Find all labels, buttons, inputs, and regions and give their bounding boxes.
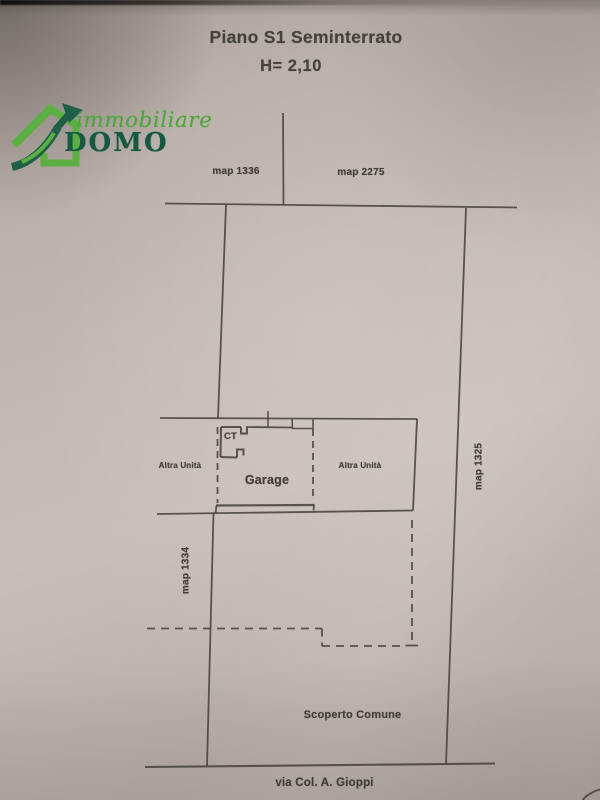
right-boundary-line — [446, 208, 466, 765]
top-boundary-line — [165, 204, 517, 208]
garage-top-wall — [246, 427, 292, 428]
scanned-floor-plan-photo: immobiliare DOMO Piano S1 Seminterrato H… — [0, 0, 600, 800]
wall-recess-notch — [292, 419, 313, 429]
garage-bottom-wall — [216, 505, 315, 506]
room-label-garage: Garage — [236, 473, 298, 487]
street-name-label: via Col. A. Gioppi — [252, 777, 397, 789]
parcel-label-map-1325: map 1325 — [474, 422, 485, 512]
left-boundary-upper — [218, 205, 226, 418]
left-boundary-lower — [207, 513, 214, 766]
room-label-altra-unita-right: Altra Unità — [329, 461, 391, 470]
room-label-altra-unita-left: Altra Unità — [149, 461, 211, 470]
parcel-label-map-1336: map 1336 — [205, 166, 267, 177]
room-label-ct: CT — [224, 431, 237, 442]
floor-plan-drawing — [0, 0, 600, 800]
corner-stamp-arc — [579, 784, 600, 800]
parcel-label-map-1334: map 1334 — [181, 526, 192, 616]
area-label-scoperto-comune: Scoperto Comune — [290, 709, 415, 721]
parcel-label-map-2275: map 2275 — [330, 167, 392, 178]
street-line — [145, 764, 495, 768]
block-right-wall — [413, 419, 417, 511]
block-bottom-line — [157, 511, 413, 515]
parcel-divider-line — [283, 113, 284, 205]
block-top-line — [160, 418, 417, 419]
